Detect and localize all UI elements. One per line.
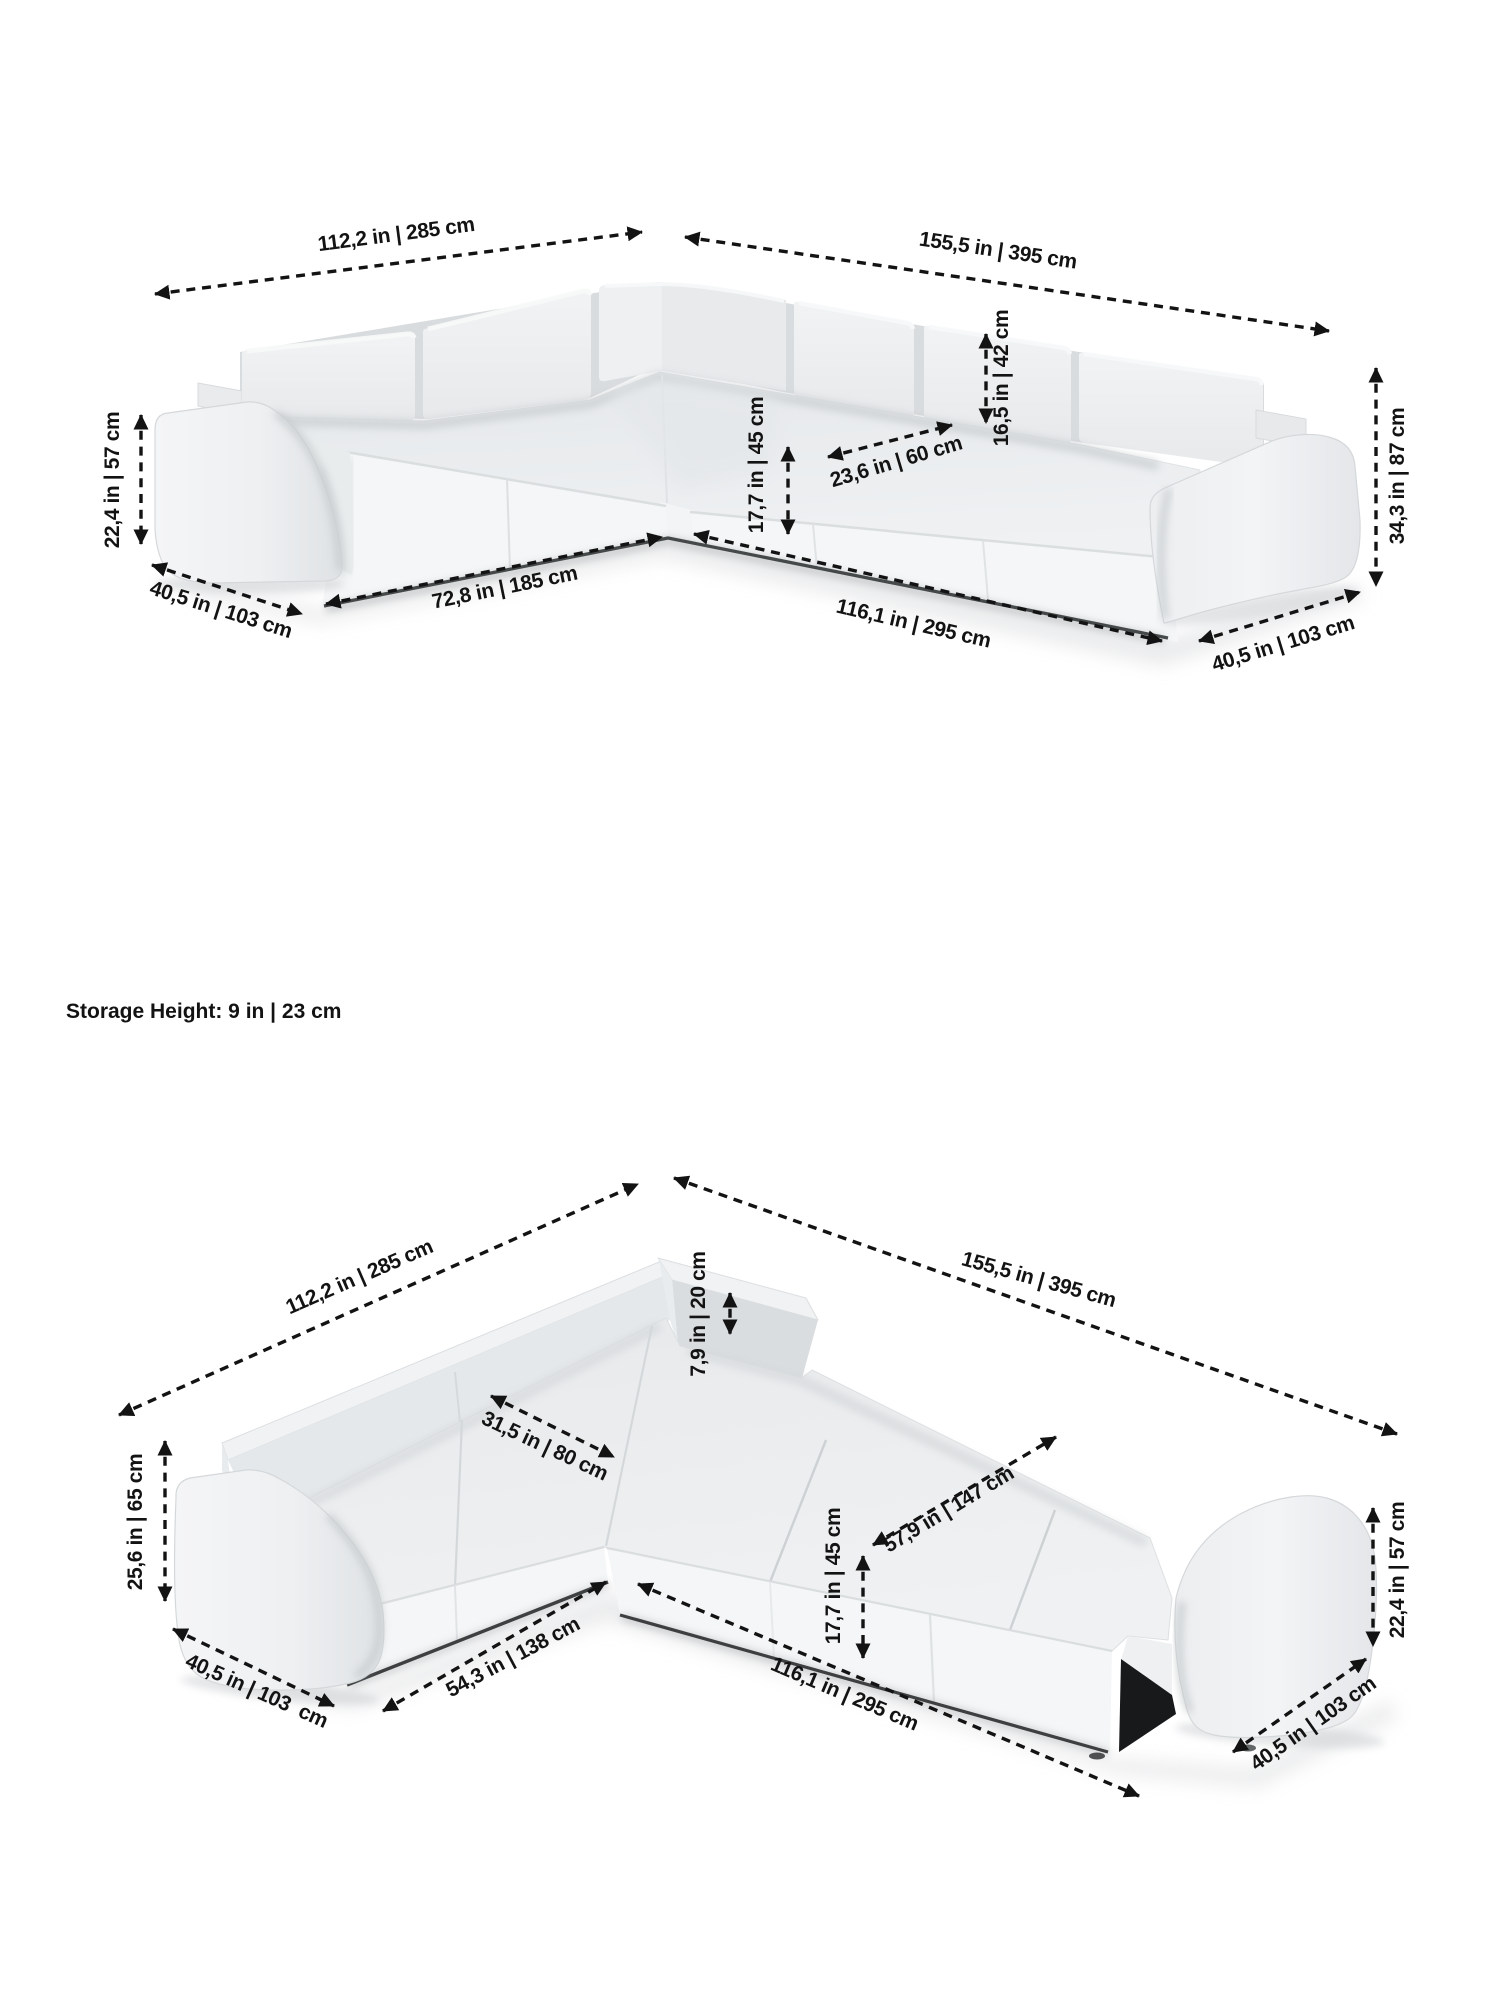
svg-text:25,6 in | 65 cm: 25,6 in | 65 cm — [124, 1454, 147, 1590]
svg-text:22,4 in | 57 cm: 22,4 in | 57 cm — [1386, 1502, 1409, 1638]
svg-text:17,7 in | 45 cm: 17,7 in | 45 cm — [822, 1508, 845, 1644]
svg-text:155,5 in | 395 cm: 155,5 in | 395 cm — [959, 1247, 1118, 1312]
svg-text:155,5 in | 395 cm: 155,5 in | 395 cm — [918, 228, 1079, 274]
svg-text:17,7 in | 45 cm: 17,7 in | 45 cm — [745, 397, 768, 533]
svg-text:7,9 in | 20 cm: 7,9 in | 20 cm — [687, 1251, 710, 1376]
svg-text:16,5 in | 42 cm: 16,5 in | 42 cm — [990, 310, 1013, 446]
svg-text:112,2 in | 285 cm: 112,2 in | 285 cm — [282, 1235, 436, 1319]
svg-text:Storage Height: 9 in | 23 cm: Storage Height: 9 in | 23 cm — [66, 1000, 341, 1023]
svg-text:34,3 in | 87 cm: 34,3 in | 87 cm — [1386, 408, 1409, 544]
svg-text:22,4 in | 57 cm: 22,4 in | 57 cm — [101, 412, 124, 548]
svg-text:112,2 in | 285 cm: 112,2 in | 285 cm — [316, 213, 476, 256]
